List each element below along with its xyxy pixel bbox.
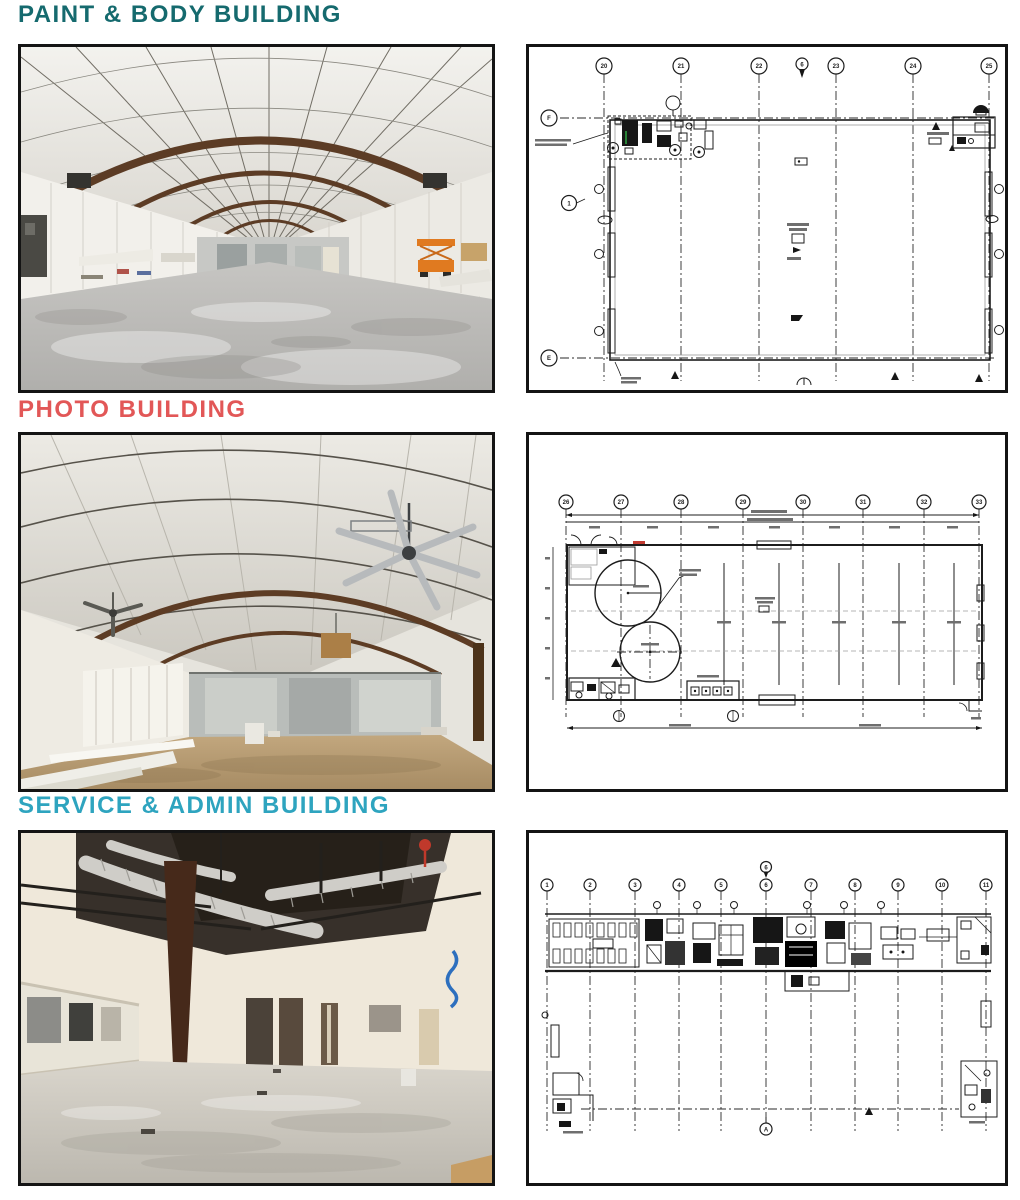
door-opening [246, 998, 273, 1068]
right-wall-louvers [985, 172, 1004, 353]
paint-body-photo [18, 44, 495, 393]
red-pipe-fitting [419, 839, 431, 851]
paint-body-plan-drawing: 6 [529, 47, 1005, 390]
svg-text:E: E [547, 356, 551, 362]
svg-text:23: 23 [833, 64, 840, 70]
office-rooms [645, 917, 957, 967]
service-admin-photo [18, 830, 495, 1186]
report-page: PAINT & BODY BUILDING [0, 0, 1020, 1200]
svg-text:29: 29 [740, 500, 747, 506]
photo-building-plan: 2627282930313233 [526, 432, 1008, 792]
keynote-balloon: 6 [796, 58, 808, 78]
section-marker: A [760, 1117, 772, 1135]
svg-text:21: 21 [678, 64, 685, 70]
section-heading-service-admin: SERVICE & ADMIN BUILDING [18, 793, 390, 819]
svg-text:10: 10 [939, 883, 946, 889]
paint-booth-equipment [608, 96, 714, 159]
bottom-left-rooms [553, 1073, 593, 1134]
svg-text:24: 24 [910, 64, 917, 70]
dimension-strings [566, 510, 979, 529]
svg-text:33: 33 [976, 500, 983, 506]
svg-text:26: 26 [563, 500, 570, 506]
window-opening [369, 1005, 401, 1032]
keynote-balloon: 6 [761, 862, 772, 879]
left-wall-louvers [595, 167, 616, 353]
bottom-right-rooms [961, 1061, 997, 1124]
svg-text:27: 27 [618, 500, 625, 506]
cubicle-area [549, 919, 639, 967]
corner-room [957, 917, 991, 963]
door-opening [279, 998, 303, 1068]
row-grid-bubbles: FE [541, 110, 557, 366]
unit-heater-left [67, 173, 91, 188]
cyclorama-circles [595, 560, 701, 682]
service-admin-photo-art [21, 833, 492, 1183]
photo-building-plan-drawing: 2627282930313233 [529, 435, 1005, 789]
bucket [401, 1069, 416, 1086]
unit-heater-right [423, 173, 447, 188]
svg-text:11: 11 [983, 883, 990, 889]
svg-text:25: 25 [986, 64, 993, 70]
photo-building-photo-art [21, 435, 492, 789]
section-heading-paint-body: PAINT & BODY BUILDING [18, 2, 342, 28]
detail-bubble: 1 [562, 196, 586, 211]
svg-text:31: 31 [860, 500, 867, 506]
service-admin-plan-drawing: 6 [529, 833, 1005, 1183]
svg-text:28: 28 [678, 500, 685, 506]
keynote-circles [654, 902, 885, 915]
svg-text:30: 30 [800, 500, 807, 506]
column-grid-bubbles: 2627282930313233 [559, 495, 986, 509]
equipment-block [687, 675, 739, 700]
paint-body-photo-art [21, 47, 492, 390]
paint-body-plan: 6 [526, 44, 1008, 393]
svg-text:20: 20 [601, 64, 608, 70]
section-heading-photo-building: PHOTO BUILDING [18, 397, 247, 423]
svg-text:22: 22 [756, 64, 763, 70]
svg-text:F: F [547, 116, 551, 122]
red-revision-note [633, 541, 645, 544]
column-grid-bubbles: 1234567891011 [541, 879, 992, 891]
photo-building-photo [18, 432, 495, 792]
svg-text:A: A [764, 1128, 769, 1134]
electrical-room [569, 678, 635, 700]
svg-text:32: 32 [921, 500, 928, 506]
service-admin-plan: 6 [526, 830, 1008, 1186]
